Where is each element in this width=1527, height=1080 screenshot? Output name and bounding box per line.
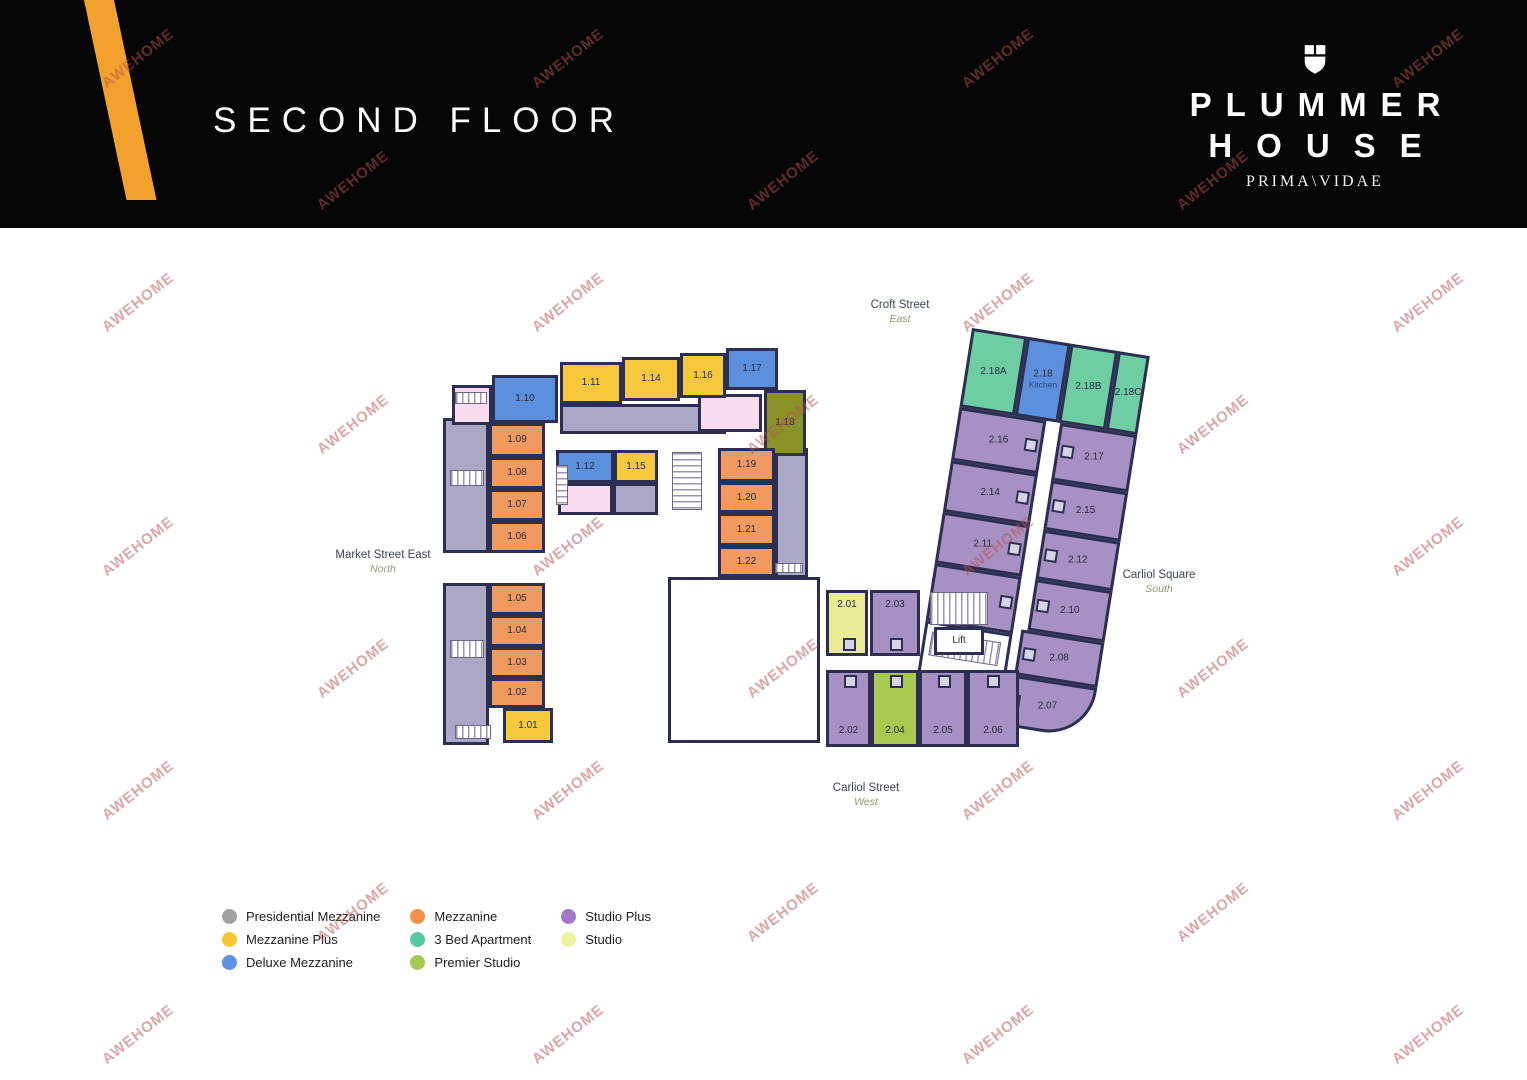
white-room xyxy=(668,577,820,743)
unit-label: 1.15 xyxy=(626,461,645,473)
unit-1.11: 1.11 xyxy=(560,362,622,404)
bathroom-pod xyxy=(844,675,857,688)
unit-label: 1.11 xyxy=(582,377,601,389)
unit-Lift: Lift xyxy=(934,627,984,655)
unit-label: 1.04 xyxy=(507,625,526,637)
legend-column-3: Studio Plus Studio xyxy=(561,908,651,970)
legend-column-2: Mezzanine 3 Bed Apartment Premier Studio xyxy=(410,908,531,970)
unit-2.01: 2.01 xyxy=(826,590,868,656)
stairs xyxy=(556,465,568,505)
unit-label: 2.06 xyxy=(983,725,1002,737)
unit-1.06: 1.06 xyxy=(489,521,545,553)
legend-swatch-mezzanine xyxy=(410,909,425,924)
stairs xyxy=(672,452,702,510)
unit-label: 2.11 xyxy=(973,539,992,551)
unit-label: 2.14 xyxy=(981,487,1000,499)
street-label-market: Market Street East North xyxy=(298,549,468,575)
unit-2.05: 2.05 xyxy=(919,670,967,747)
grey-room xyxy=(443,583,489,745)
page: { "header": { "title": "SECOND FLOOR", "… xyxy=(0,0,1527,1080)
bathroom-pod xyxy=(1015,490,1030,505)
bathroom-pod xyxy=(1043,549,1058,564)
legend-item: Presidential Mezzanine xyxy=(222,908,380,924)
unit-label: 1.07 xyxy=(507,499,526,511)
bathroom-pod xyxy=(999,595,1014,610)
bathroom-pod xyxy=(987,675,1000,688)
unit-label: 1.18 xyxy=(775,417,794,429)
legend-swatch-deluxe-mezzanine xyxy=(222,955,237,970)
legend-item: Premier Studio xyxy=(410,954,531,970)
bathroom-pod xyxy=(938,675,951,688)
bathroom-pod xyxy=(1051,499,1066,514)
unit-label: 2.01 xyxy=(837,599,856,611)
bathroom-pod xyxy=(843,638,856,651)
unit-sublabel: Kitchen xyxy=(1029,381,1057,391)
bathroom-pod xyxy=(1060,445,1075,460)
unit-label: Lift xyxy=(952,635,965,647)
unit-label: 2.16 xyxy=(989,435,1008,447)
stairs xyxy=(450,470,484,486)
legend-item: Deluxe Mezzanine xyxy=(222,954,380,970)
bathroom-pod xyxy=(1007,542,1022,557)
legend-column-1: Presidential Mezzanine Mezzanine Plus De… xyxy=(222,908,380,970)
unit-label: 1.16 xyxy=(693,370,712,382)
legend-item: 3 Bed Apartment xyxy=(410,931,531,947)
street-label-croft: Croft Street East xyxy=(815,299,985,325)
pink-room xyxy=(698,394,762,432)
unit-2.02: 2.02 xyxy=(826,670,871,747)
unit-label: 2.03 xyxy=(885,599,904,611)
unit-label: 2.15 xyxy=(1076,505,1095,517)
unit-label: 1.06 xyxy=(507,531,526,543)
stairs xyxy=(455,725,491,739)
unit-label: 1.22 xyxy=(737,556,756,568)
legend-item: Mezzanine Plus xyxy=(222,931,380,947)
unit-1.22: 1.22 xyxy=(718,546,775,577)
unit-1.15: 1.15 xyxy=(614,450,658,483)
unit-label: 1.10 xyxy=(515,393,534,405)
bathroom-pod xyxy=(1023,438,1038,453)
unit-1.05: 1.05 xyxy=(489,583,545,615)
unit-1.01: 1.01 xyxy=(503,708,553,743)
street-label-carliol-square: Carliol Square South xyxy=(1074,569,1244,595)
unit-label: 2.17 xyxy=(1084,452,1103,464)
unit-1.18: 1.18 xyxy=(764,390,806,456)
unit-1.02: 1.02 xyxy=(489,678,545,708)
unit-label: 1.12 xyxy=(575,461,594,473)
grey-room xyxy=(775,448,808,578)
unit-2.06: 2.06 xyxy=(967,670,1019,747)
bathroom-pod xyxy=(890,675,903,688)
grey-room xyxy=(613,483,658,515)
stairs xyxy=(930,592,988,625)
unit-label: 2.04 xyxy=(885,725,904,737)
unit-1.07: 1.07 xyxy=(489,489,545,521)
legend-swatch-mezzanine-plus xyxy=(222,932,237,947)
unit-1.21: 1.21 xyxy=(718,513,775,546)
legend-swatch-studio xyxy=(561,932,576,947)
legend: Presidential Mezzanine Mezzanine Plus De… xyxy=(222,908,651,970)
unit-2.04: 2.04 xyxy=(871,670,919,747)
unit-2.03: 2.03 xyxy=(870,590,920,656)
stairs xyxy=(450,640,484,658)
unit-1.04: 1.04 xyxy=(489,615,545,647)
unit-1.09: 1.09 xyxy=(489,423,545,457)
unit-label: 2.18C xyxy=(1114,387,1141,399)
unit-label: 2.12 xyxy=(1068,555,1087,567)
unit-1.14: 1.14 xyxy=(622,357,680,401)
unit-1.19: 1.19 xyxy=(718,448,775,482)
unit-label: 2.18A xyxy=(980,366,1006,378)
legend-swatch-premier-studio xyxy=(410,955,425,970)
unit-label: 1.08 xyxy=(507,467,526,479)
unit-label: 1.20 xyxy=(737,492,756,504)
unit-label: 1.02 xyxy=(507,687,526,699)
unit-label: 2.07 xyxy=(1038,701,1057,713)
unit-1.10: 1.10 xyxy=(492,375,558,423)
legend-swatch-3-bed-apartment xyxy=(410,932,425,947)
unit-label: 1.17 xyxy=(742,363,761,375)
unit-1.08: 1.08 xyxy=(489,457,545,489)
unit-label: 2.18B xyxy=(1075,381,1101,393)
pink-room xyxy=(452,385,492,425)
unit-label: 2.08 xyxy=(1050,653,1069,664)
unit-1.20: 1.20 xyxy=(718,482,775,513)
stairs xyxy=(775,563,803,573)
legend-item: Studio Plus xyxy=(561,908,651,924)
legend-item: Studio xyxy=(561,931,651,947)
street-label-carliol-street: Carliol Street West xyxy=(781,782,951,808)
bathroom-pod xyxy=(1035,599,1050,614)
unit-label: 1.14 xyxy=(641,373,660,385)
unit-label: 1.01 xyxy=(518,720,537,732)
unit-1.17: 1.17 xyxy=(726,348,778,390)
legend-swatch-presidential-mezzanine xyxy=(222,909,237,924)
legend-item: Mezzanine xyxy=(410,908,531,924)
unit-label: 2.05 xyxy=(933,725,952,737)
unit-label: 1.19 xyxy=(737,459,756,471)
unit-1.03: 1.03 xyxy=(489,647,545,678)
unit-label: 2.18Kitchen xyxy=(1029,369,1057,390)
bathroom-pod xyxy=(890,638,903,651)
bathroom-pod xyxy=(1022,647,1037,662)
unit-label: 1.09 xyxy=(507,434,526,446)
unit-label: 1.05 xyxy=(507,593,526,605)
unit-label: 1.21 xyxy=(737,524,756,536)
unit-1.16: 1.16 xyxy=(680,353,726,398)
stairs xyxy=(455,392,487,404)
legend-swatch-studio-plus xyxy=(561,909,576,924)
unit-label: 1.03 xyxy=(507,657,526,669)
unit-label: 2.10 xyxy=(1060,605,1079,617)
unit-label: 2.02 xyxy=(839,725,858,737)
